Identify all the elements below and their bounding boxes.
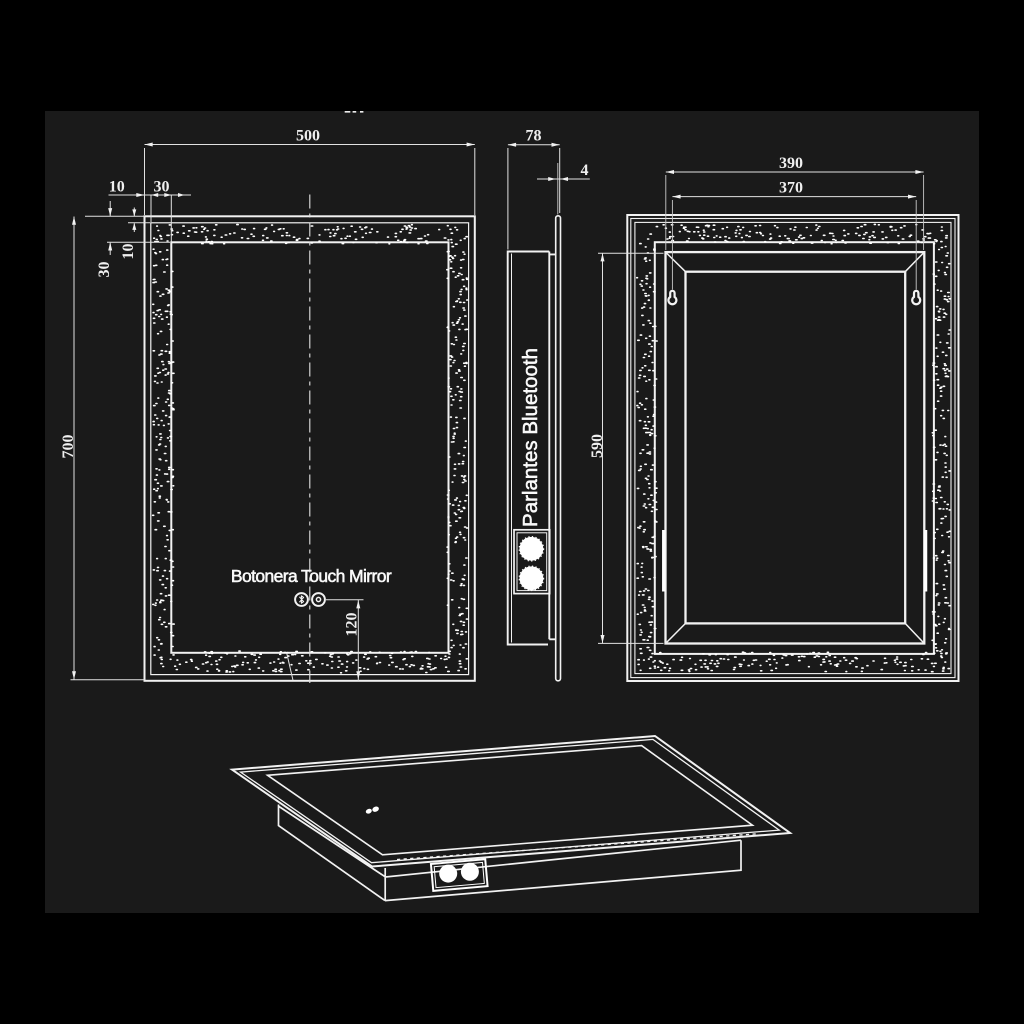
svg-text:78: 78: [526, 128, 542, 145]
svg-text:390: 390: [779, 155, 803, 172]
svg-text:590: 590: [589, 434, 606, 458]
svg-text:30: 30: [154, 179, 170, 196]
svg-text:120: 120: [344, 613, 361, 637]
svg-text:30: 30: [96, 262, 113, 278]
svg-text:700: 700: [60, 435, 77, 459]
svg-text:370: 370: [779, 180, 803, 197]
svg-text:Botonera Touch Mirror: Botonera Touch Mirror: [231, 566, 392, 586]
svg-text:10: 10: [109, 179, 125, 196]
svg-text:Parlantes Bluetooth: Parlantes Bluetooth: [519, 348, 542, 527]
svg-text:500: 500: [296, 128, 320, 145]
svg-text:4: 4: [581, 162, 589, 179]
svg-text:10: 10: [120, 244, 137, 260]
